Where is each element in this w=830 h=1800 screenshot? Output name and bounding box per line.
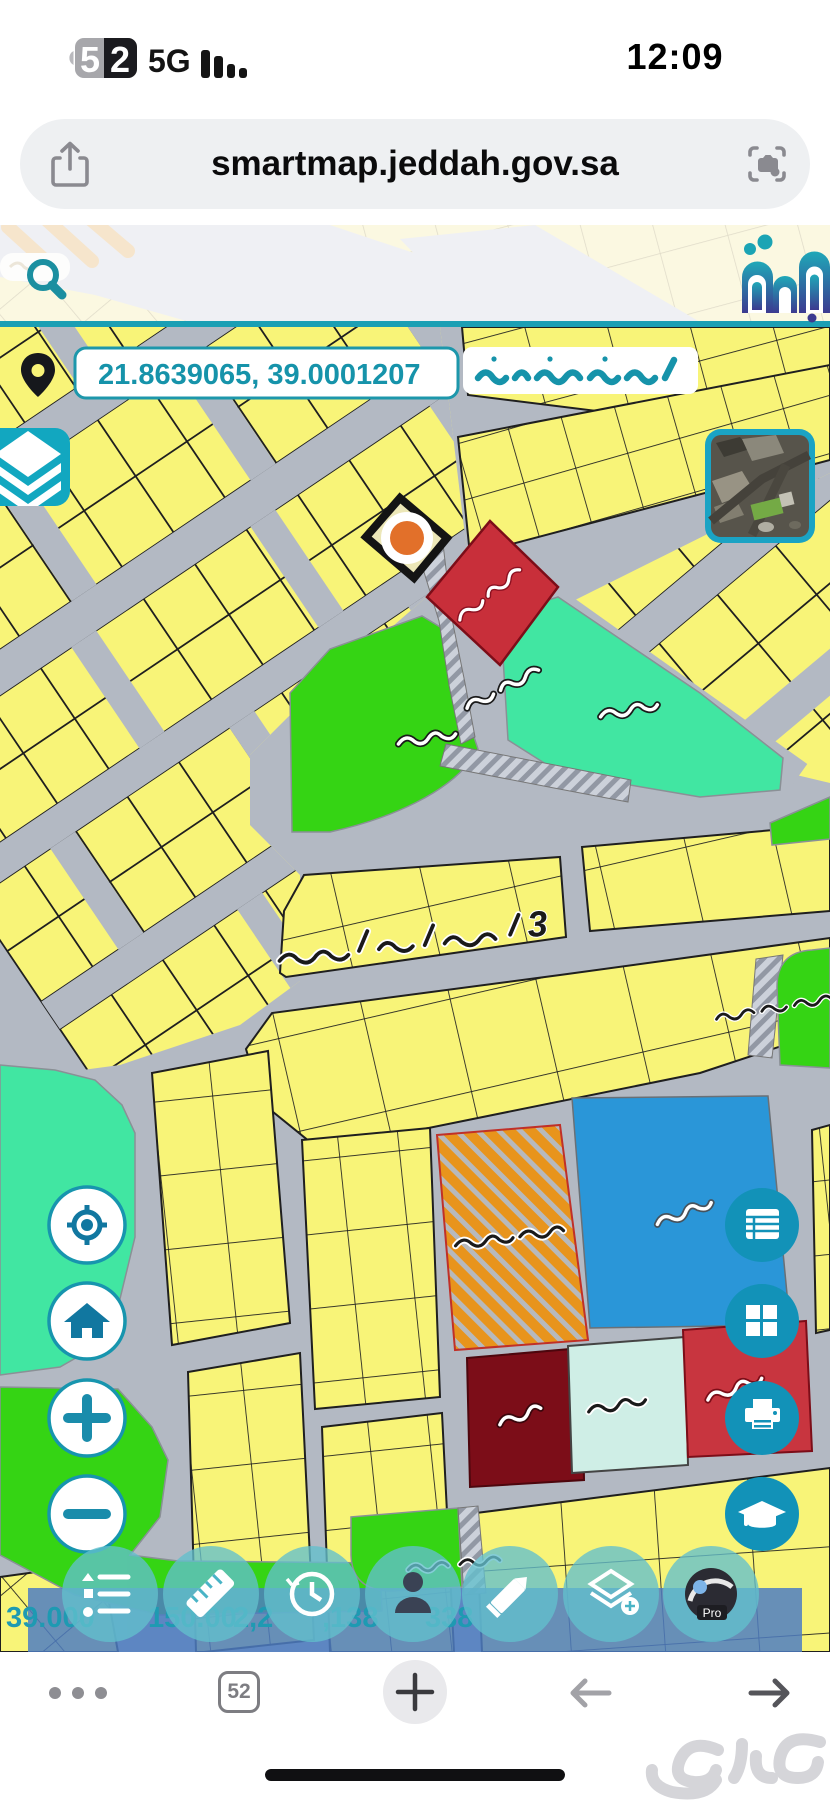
svg-text:2: 2 xyxy=(110,39,130,80)
svg-text:21.8639065, 39.0001207: 21.8639065, 39.0001207 xyxy=(98,359,421,391)
svg-text:3: 3 xyxy=(526,902,550,945)
svg-text:Pro: Pro xyxy=(703,1606,722,1620)
svg-text:5: 5 xyxy=(80,39,100,80)
svg-text:5G: 5G xyxy=(148,43,191,79)
